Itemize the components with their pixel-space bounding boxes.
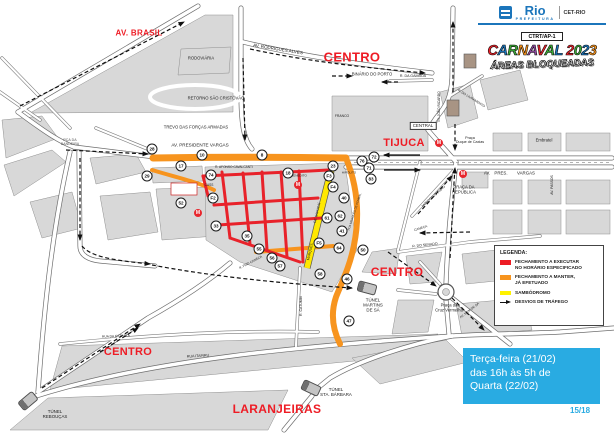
rio-logo-text-wrap: Rio PREFEITURA (516, 5, 555, 21)
prefeitura-label: PREFEITURA (516, 17, 555, 21)
legend-title: LEGENDA: (500, 250, 599, 256)
carnaval-title-letter: C (488, 43, 498, 59)
legend-item-label: FECHAMENTO A MANTER, JÁ EFETUADO (515, 274, 575, 286)
carnaval-title-letter: N (518, 43, 528, 59)
rio-prefeitura-logo-icon (499, 6, 512, 19)
carnaval-title: CARNAVAL 2023 (478, 44, 606, 59)
joao-ricardo-tunnel-icon (447, 100, 459, 116)
carnival-blocked-areas-map: AV. BRASILCENTROTIJUCACENTROCENTROLARANJ… (0, 0, 614, 438)
city-hall-building (171, 183, 197, 195)
legend-item-label: SAMBÓDROMO (515, 290, 550, 296)
legend-item-label: FECHAMENTO A EXECUTAR NO HORÁRIO ESPECIF… (515, 259, 582, 271)
carnaval-title-letter: L (554, 43, 562, 59)
legend: LEGENDA: FECHAMENTO A EXECUTAR NO HORÁRI… (494, 245, 604, 326)
legend-item: SAMBÓDROMO (500, 290, 599, 296)
page-number: 15/18 (570, 406, 590, 415)
carnaval-title-letter: 2 (581, 43, 589, 59)
logo-divider (559, 6, 560, 19)
carnaval-title-letter: V (536, 43, 544, 59)
carnaval-title-letter: 2 (566, 43, 574, 59)
legend-item-label: DESVIOS DE TRÁFEGO (515, 299, 568, 305)
carnaval-title-letter: R (508, 43, 518, 59)
logo-row: Rio PREFEITURA CET-RIO (478, 5, 606, 25)
legend-item: DESVIOS DE TRÁFEGO (500, 299, 599, 305)
header: Rio PREFEITURA CET-RIO CTRT/AP-1 CARNAVA… (478, 5, 606, 70)
cetrio-label: CET-RIO (564, 10, 586, 16)
detour-arrow-icon (500, 300, 511, 305)
orange-swatch (500, 275, 511, 280)
legend-item: FECHAMENTO A EXECUTAR NO HORÁRIO ESPECIF… (500, 259, 599, 271)
carnaval-title-letter: A (498, 43, 508, 59)
red-swatch (500, 260, 511, 265)
building-icon (464, 54, 476, 68)
unit-badge: CTRT/AP-1 (521, 32, 562, 41)
carnaval-title-letter: A (545, 43, 555, 59)
yellow-swatch (500, 291, 511, 296)
rio-logo-text: Rio (525, 5, 546, 17)
legend-item: FECHAMENTO A MANTER, JÁ EFETUADO (500, 274, 599, 286)
blocked-areas-subtitle: ÁREAS BLOQUEADAS (478, 57, 606, 72)
schedule-banner: Terça-feira (21/02) das 16h às 5h de Qua… (463, 348, 600, 404)
cruz-vermelha-roundabout (438, 284, 454, 300)
